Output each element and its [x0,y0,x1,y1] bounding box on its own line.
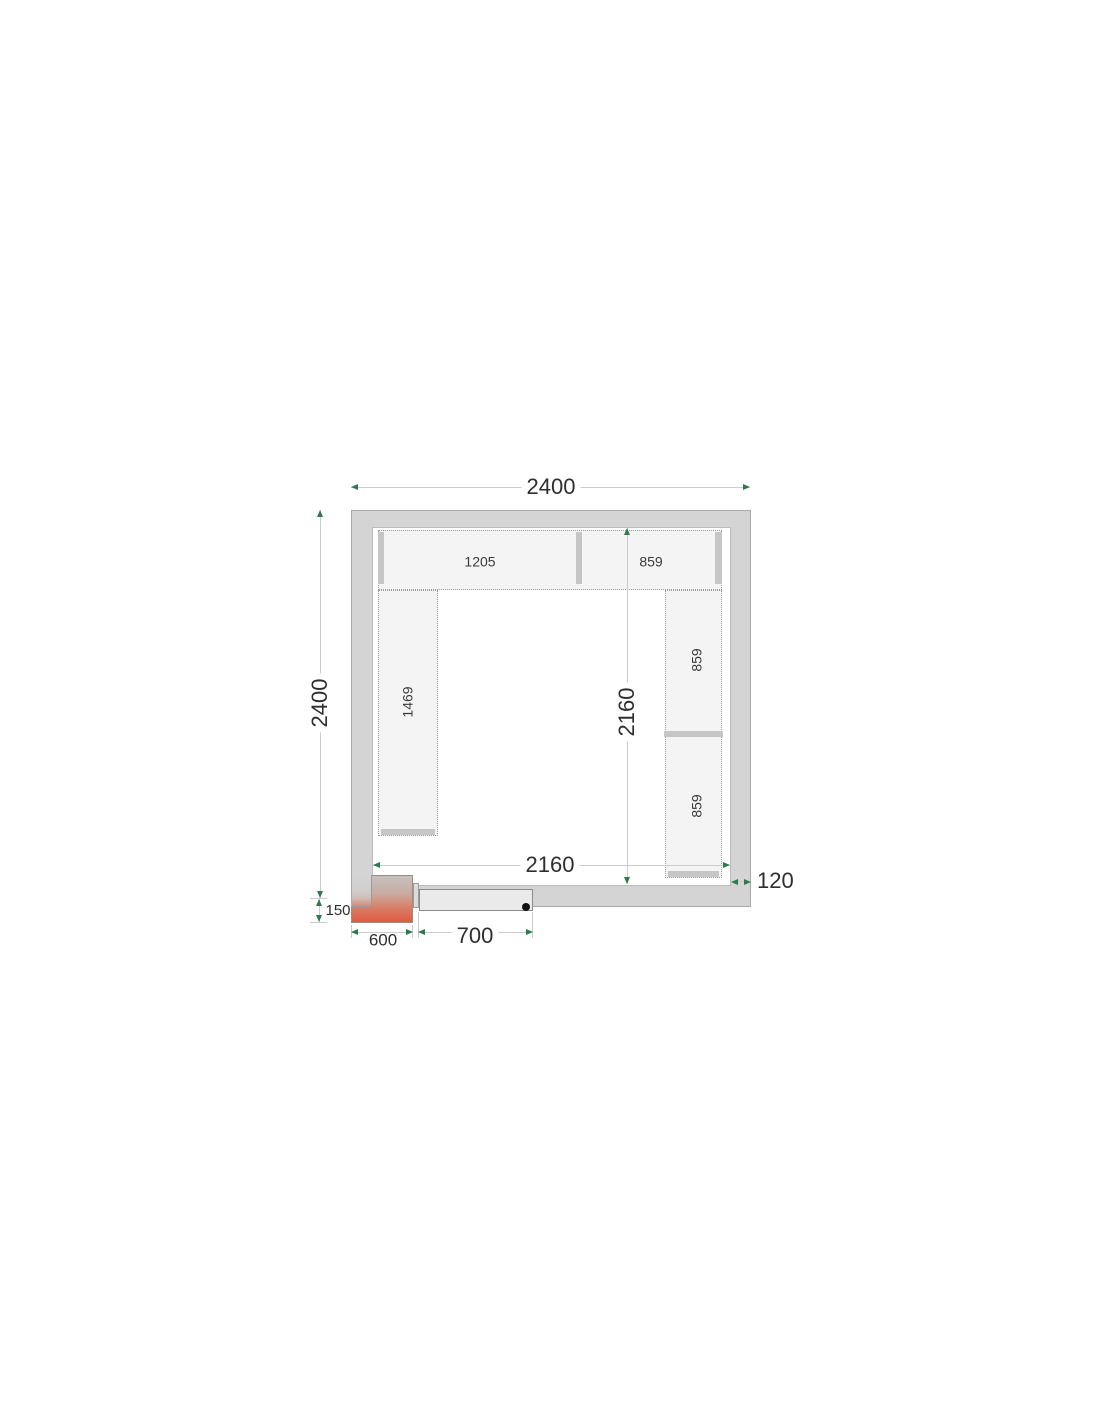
dimension-arrow-icon [317,891,323,898]
dim-label-inner-depth: 2160 [615,683,639,742]
shelf-label-top-left: 1205 [464,554,495,569]
shelf-separator-bar [664,731,723,737]
dim-label-unit-overhang: 150 [325,903,350,920]
shelf-top [378,530,722,590]
wall-column-over-unit [351,875,372,907]
dimension-arrow-icon [351,929,358,935]
door-slab [419,889,533,911]
shelf-support-bar [668,871,719,877]
dim-label-unit-width: 600 [369,932,397,951]
dimension-arrow-icon [743,484,750,490]
shelf-label-right-upper: 859 [689,648,704,671]
dimension-arrow-icon [351,484,358,490]
dim-label-door-width: 700 [452,924,499,948]
dim-label-wall-thickness: 120 [757,869,794,893]
dimension-arrow-icon [316,915,322,922]
dimension-arrow-icon [373,862,380,868]
dimension-arrow-icon [317,510,323,517]
dim-ext-line [310,922,327,923]
dimension-arrow-icon [723,862,730,868]
dimension-arrow-icon [418,929,425,935]
shelf-support-bar [381,829,435,835]
shelf-label-right-lower: 859 [689,794,704,817]
dimension-arrow-icon [316,899,322,906]
dim-label-inner-width: 2160 [521,853,580,877]
door-handle-dot [522,903,530,911]
shelf-label-left: 1469 [400,686,415,717]
dimension-arrow-icon [406,929,413,935]
shelf-support-bar [715,532,722,584]
dimension-arrow-icon [624,528,630,535]
floor-plan-canvas: 1205 859 1469 859 859 2400 2400 2160 216… [0,0,1100,1422]
dim-label-outer-depth: 2400 [308,674,332,733]
dimension-arrow-icon [624,877,630,884]
dim-label-outer-width: 2400 [522,475,581,499]
dimension-arrow-icon [731,879,738,885]
shelf-support-bar [378,532,384,584]
dimension-arrow-icon [744,879,751,885]
dimension-arrow-icon [526,929,533,935]
shelf-support-bar [576,532,582,584]
shelf-label-top-right: 859 [639,554,662,569]
